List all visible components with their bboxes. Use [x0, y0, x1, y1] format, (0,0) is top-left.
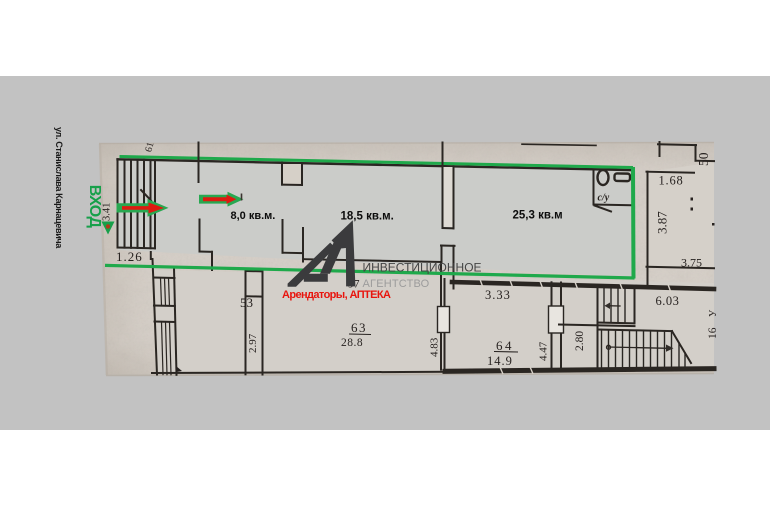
svg-text:2.97: 2.97	[247, 333, 259, 353]
svg-text:У: У	[708, 309, 719, 317]
svg-text:64: 64	[496, 338, 514, 353]
svg-text:3.87: 3.87	[655, 211, 670, 234]
svg-text:4.47: 4.47	[538, 341, 550, 361]
svg-text:6.03: 6.03	[656, 294, 680, 308]
svg-text:2.80: 2.80	[574, 331, 586, 351]
svg-text:ИНВЕСТИЦИОННОЕ: ИНВЕСТИЦИОННОЕ	[363, 261, 482, 275]
svg-text:28.8: 28.8	[341, 337, 363, 349]
svg-text:53: 53	[240, 295, 253, 310]
svg-text:Арендаторы, АПТЕКА: Арендаторы, АПТЕКА	[282, 289, 391, 301]
svg-text:ВХОД: ВХОД	[86, 185, 103, 229]
svg-text:с/у: с/у	[598, 193, 610, 204]
svg-text:18,5 кв.м.: 18,5 кв.м.	[341, 210, 394, 222]
svg-text:8,0 кв.м.: 8,0 кв.м.	[231, 210, 276, 222]
svg-text:16: 16	[707, 327, 719, 339]
svg-text:63: 63	[351, 320, 367, 335]
svg-text:ул. Станислава Карнацевича: ул. Станислава Карнацевича	[54, 127, 64, 249]
svg-text:3.75: 3.75	[681, 256, 702, 270]
svg-text:25,3 кв.м: 25,3 кв.м	[513, 210, 563, 222]
svg-text:4.83: 4.83	[429, 337, 441, 357]
svg-text:1.26: 1.26	[116, 249, 143, 264]
svg-text:1.68: 1.68	[659, 174, 684, 188]
svg-text:14.9: 14.9	[487, 354, 513, 368]
svg-text:50: 50	[696, 152, 711, 166]
svg-text:3.33: 3.33	[485, 288, 511, 302]
